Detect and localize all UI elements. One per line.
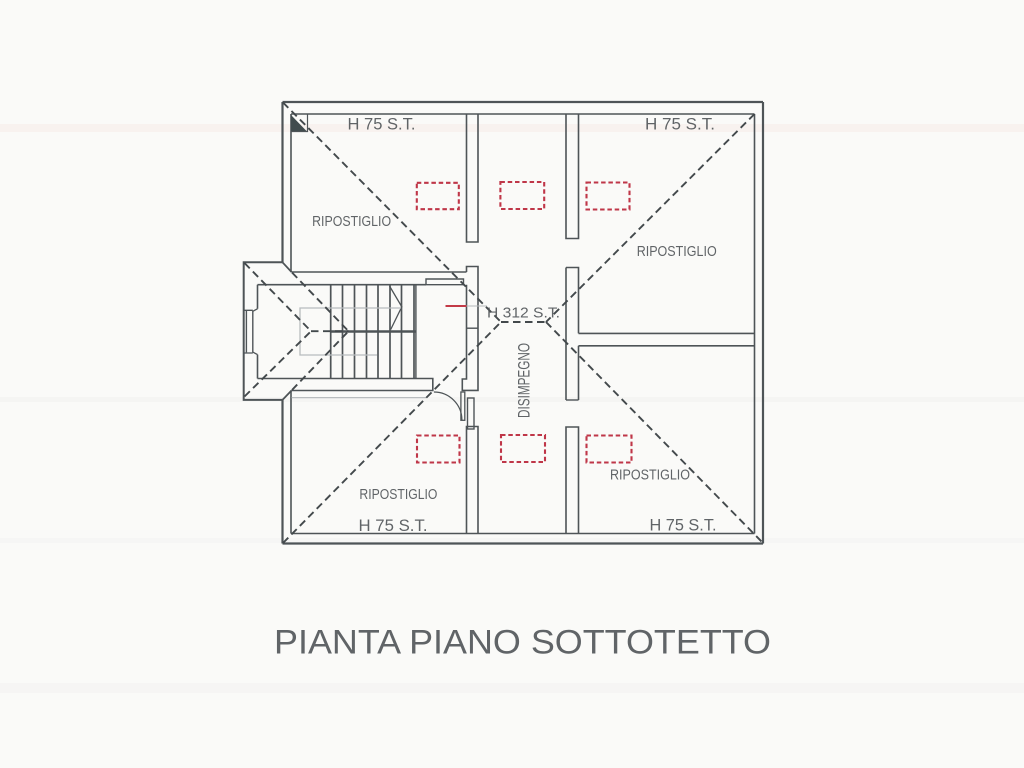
svg-text:PIANTA PIANO SOTTOTETTO: PIANTA PIANO SOTTOTETTO [274,624,771,662]
svg-text:RIPOSTIGLIO: RIPOSTIGLIO [359,486,437,503]
svg-text:H 75 S.T.: H 75 S.T. [645,115,715,134]
svg-text:H 75 S.T.: H 75 S.T. [359,517,428,535]
svg-text:DISIMPEGNO: DISIMPEGNO [515,343,534,418]
svg-text:RIPOSTIGLIO: RIPOSTIGLIO [312,213,391,230]
svg-text:H 75 S.T.: H 75 S.T. [650,517,717,535]
svg-text:RIPOSTIGLIO: RIPOSTIGLIO [610,467,690,484]
svg-text:H 312 S.T.: H 312 S.T. [487,305,560,322]
svg-text:RIPOSTIGLIO: RIPOSTIGLIO [637,243,717,260]
svg-text:H 75 S.T.: H 75 S.T. [348,115,416,134]
